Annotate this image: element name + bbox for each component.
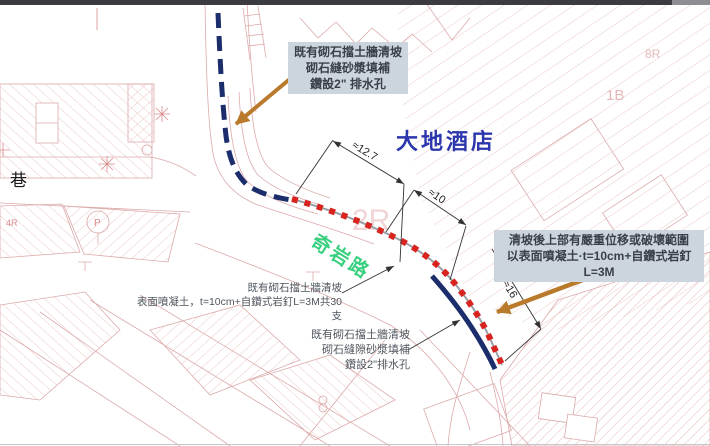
annotation-line: 鑽設2" 排水孔 — [291, 76, 405, 92]
annotation-line: 鑽設2"排水孔 — [278, 358, 410, 373]
basemap-text-8r: 8R — [645, 47, 661, 61]
window-top-bar-light-segment — [672, 0, 710, 5]
basemap-text-1b: 1B — [606, 87, 624, 104]
annotation-line: 既有砌石擋土牆清坡 — [128, 281, 342, 295]
annotation-line: 既有砌石擋土牆清坡 — [291, 44, 405, 60]
annotation-box-displacement-right: 清坡後上部有嚴重位移或破壞範圍 以表面噴凝土·t=10cm+自鑽式岩釘L=3M — [494, 230, 704, 282]
annotation-note-shotcrete-left: 既有砌石擋土牆清坡 表面噴凝土，t=10cm+自鑽式岩釘L=3M共30支 — [128, 281, 342, 323]
annotation-line: 表面噴凝土，t=10cm+自鑽式岩釘L=3M共30支 — [128, 295, 342, 323]
leader-bottom-note — [408, 320, 460, 350]
window-top-bar — [0, 0, 710, 5]
window-bottom-edge — [0, 444, 710, 445]
site-plan-screenshot: 2R 1B 8R 4R P ≈12.7 ≈10 — [0, 0, 710, 446]
annotation-box-existing-wall-top: 既有砌石擋土牆清坡 砌石縫砂漿填補 鑽設2" 排水孔 — [288, 42, 408, 94]
basemap-text-p: P — [94, 218, 101, 229]
annotation-line: 清坡後上部有嚴重位移或破壞範圍 — [497, 232, 701, 248]
basemap-text-4r: 4R — [6, 218, 18, 228]
extension-line — [296, 140, 333, 194]
annotation-line: 以表面噴凝土·t=10cm+自鑽式岩釘L=3M — [497, 248, 701, 280]
annotation-note-existing-wall-bottom: 既有砌石擋土牆清坡 砌石縫隙砂漿填補 鑽設2"排水孔 — [278, 328, 410, 373]
lane-label: 巷 — [10, 166, 27, 191]
annotation-line: 砌石縫隙砂漿填補 — [278, 343, 410, 358]
hotel-name-label: 大地酒店 — [396, 124, 496, 156]
annotation-line: 既有砌石擋土牆清坡 — [278, 328, 410, 343]
annotation-line: 砌石縫砂漿填補 — [291, 60, 405, 76]
extension-line — [400, 184, 404, 262]
